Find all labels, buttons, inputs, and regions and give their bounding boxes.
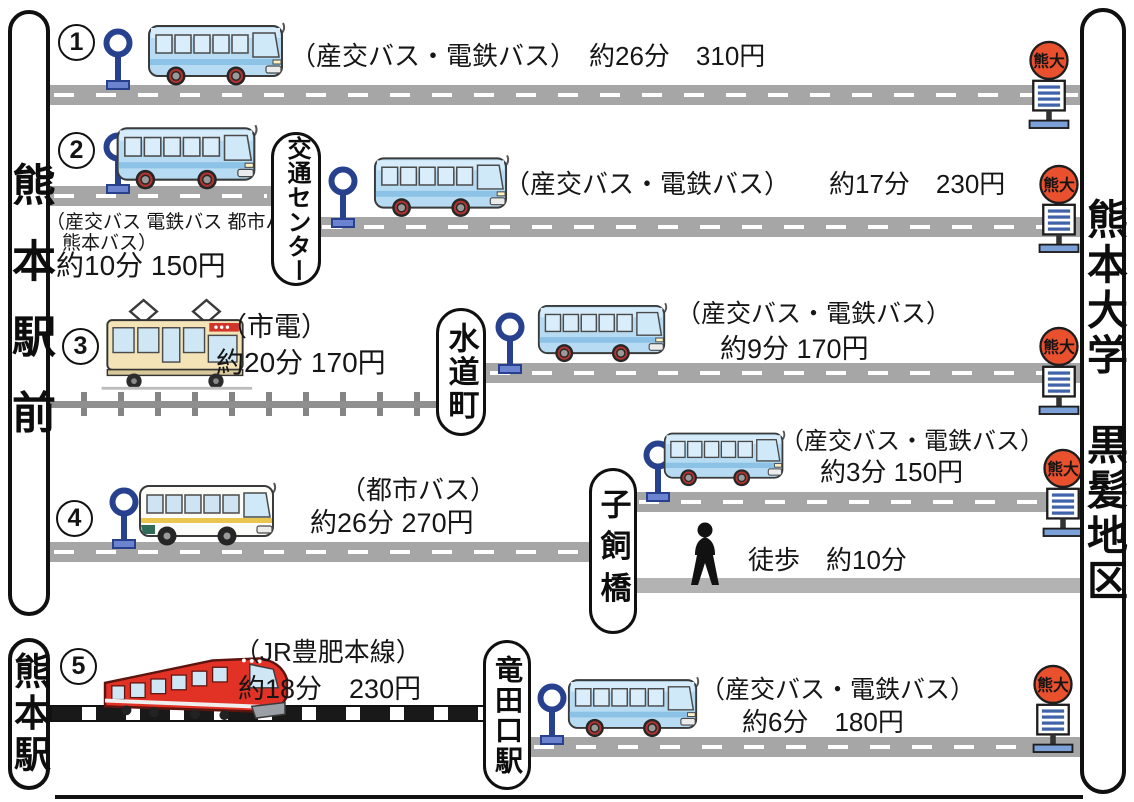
bus-stop-pole-icon [100,28,136,91]
route-2-road-b [318,217,1082,237]
route-2-number: 2 [58,132,95,169]
route-4-walk-label: 徒歩 約10分 [748,546,907,576]
route-5-leg1-fare: 約18分 230円 [238,674,421,705]
stop-kotsu-center-label: 交通センター [284,136,308,283]
route-3-number: 3 [62,328,99,365]
stop-suidocho-label: 水道町 [446,322,477,422]
bus-stop-pole-icon [325,166,361,229]
stop-tatsutaguchi-label: 竜田口駅 [493,655,521,776]
route-4-leg1-fare: 約26分 270円 [310,508,474,539]
route-4-leg2-name: （産交バス・電鉄バス） [780,428,1044,456]
walker-icon [684,522,724,596]
route-5-leg1-name: （JR豊肥本線） [234,638,422,668]
stop-suidocho: 水道町 [436,308,486,436]
route-4-leg1-name: （都市バス） [340,476,496,506]
route-3-leg1-fare: 約20分 170円 [216,347,386,379]
bus-icon [536,296,668,365]
route-5-leg2-fare: 約6分 180円 [742,708,904,738]
station-kumamoto-eki-label: 熊本駅 [11,652,48,776]
stop-kokaibashi: 子飼橋 [589,468,637,634]
stop-tatsutaguchi: 竜田口駅 [483,640,531,790]
transit-access-diagram: 熊大 熊本駅前 熊本駅 熊本大 [0,0,1134,802]
kumadai-bus-stop-sign [1028,664,1078,753]
destination-kumadai-kurokami-label: 熊本大学 黒髪地区 [1083,198,1124,604]
route-2-leg1-operators-line1: （産交バス 電鉄バス 都市バス [46,212,304,234]
route-4-leg2-fare: 約3分 150円 [820,458,963,488]
route-1-number: 1 [58,24,95,61]
bus-icon [372,148,510,220]
route-4-number: 4 [56,500,93,537]
kumadai-bus-stop-sign [1024,40,1074,129]
bus-stop-pole-icon [534,683,570,746]
stop-kotsu-center: 交通センター [271,132,321,286]
route-2-leg2-label: （産交バス・電鉄バス） 約17分 230円 [504,170,1005,200]
route-3-road-b [486,363,1082,383]
route-3-leg2-fare: 約9分 170円 [720,334,869,365]
route-3-leg1-name: （市電） [220,312,328,343]
bus-icon [566,670,700,740]
route-3-leg2-name: （産交バス・電鉄バス） [676,300,951,329]
kumadai-bus-stop-sign [1034,164,1084,253]
bus-icon [662,424,786,489]
kumadai-bus-stop-sign [1034,326,1084,415]
route-5-number: 5 [60,648,97,685]
route-2-leg1-fare: 約10分 150円 [56,250,226,282]
bus-icon [114,118,259,192]
station-kumamoto-ekimae: 熊本駅前 [8,10,50,616]
stop-kokaibashi-label: 子飼橋 [598,488,629,614]
bus-stop-pole-icon [492,312,528,375]
bus-icon [146,16,286,88]
city-bus-icon [136,474,278,548]
route-4-road-b [635,492,1082,512]
route-5-leg2-name: （産交バス・電鉄バス） [700,676,975,705]
destination-kumadai-kurokami: 熊本大学 黒髪地区 [1080,8,1126,794]
station-kumamoto-eki: 熊本駅 [8,638,50,790]
route-3-tram-track [50,392,437,416]
station-kumamoto-ekimae-label: 熊本駅前 [7,162,51,465]
route-1-road [50,85,1082,105]
route-1-label: （産交バス・電鉄バス） 約26分 310円 [290,42,765,72]
route-5-road-b [530,737,1082,757]
bottom-border [55,795,1083,799]
